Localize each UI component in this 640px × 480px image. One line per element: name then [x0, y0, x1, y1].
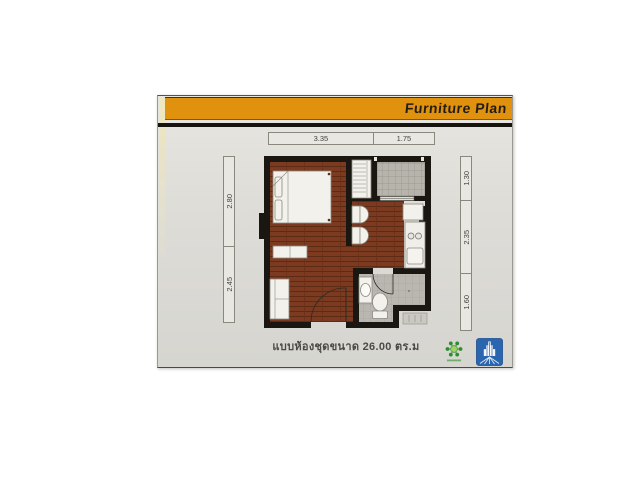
bathroom-vanity — [359, 277, 372, 303]
floor-drain — [408, 290, 410, 292]
dimension-strip-left: 2.80 2.45 — [223, 156, 235, 323]
header-bar: Furniture Plan — [165, 97, 512, 120]
floor-plan-drawing — [259, 151, 436, 333]
building-tower-logo-icon — [476, 338, 503, 366]
dimension-label: 1.30 — [461, 157, 471, 200]
left-wall-column — [259, 213, 270, 239]
window-notch — [374, 157, 377, 161]
dimension-label: 1.75 — [373, 133, 434, 144]
exterior-ledge — [403, 313, 427, 324]
kitchen-counter — [405, 222, 425, 268]
furniture-plan-card: Furniture Plan 3.35 1.75 2.80 2.45 1.30 … — [157, 95, 513, 368]
dimension-strip-right: 1.30 2.35 1.60 — [460, 156, 472, 331]
window-notch — [421, 157, 424, 161]
toilet — [373, 293, 388, 319]
bed — [273, 171, 331, 223]
fridge — [403, 204, 423, 220]
page-title: Furniture Plan — [404, 100, 508, 116]
dimension-label: 2.80 — [224, 157, 234, 246]
balcony-floor — [377, 162, 425, 196]
dimension-label: 3.35 — [269, 133, 373, 144]
tv-cabinet — [273, 246, 307, 258]
sofa — [270, 279, 289, 319]
logo-caption-bar — [447, 360, 461, 362]
kitchen-sink — [407, 248, 423, 264]
sliding-door — [380, 197, 414, 201]
header-divider — [158, 123, 512, 127]
dimension-strip-top: 3.35 1.75 — [268, 132, 435, 145]
cooktop-burner — [408, 233, 414, 239]
dimension-label: 1.60 — [461, 273, 471, 330]
wardrobe — [352, 160, 371, 198]
community-molecule-logo-icon — [444, 340, 464, 364]
dimension-label: 2.45 — [224, 246, 234, 322]
unit-size-caption: แบบห้องชุดขนาด 26.00 ตร.ม — [266, 337, 426, 355]
wash-basin — [361, 284, 371, 297]
dimension-label: 2.35 — [461, 200, 471, 272]
cooktop-burner — [416, 233, 422, 239]
